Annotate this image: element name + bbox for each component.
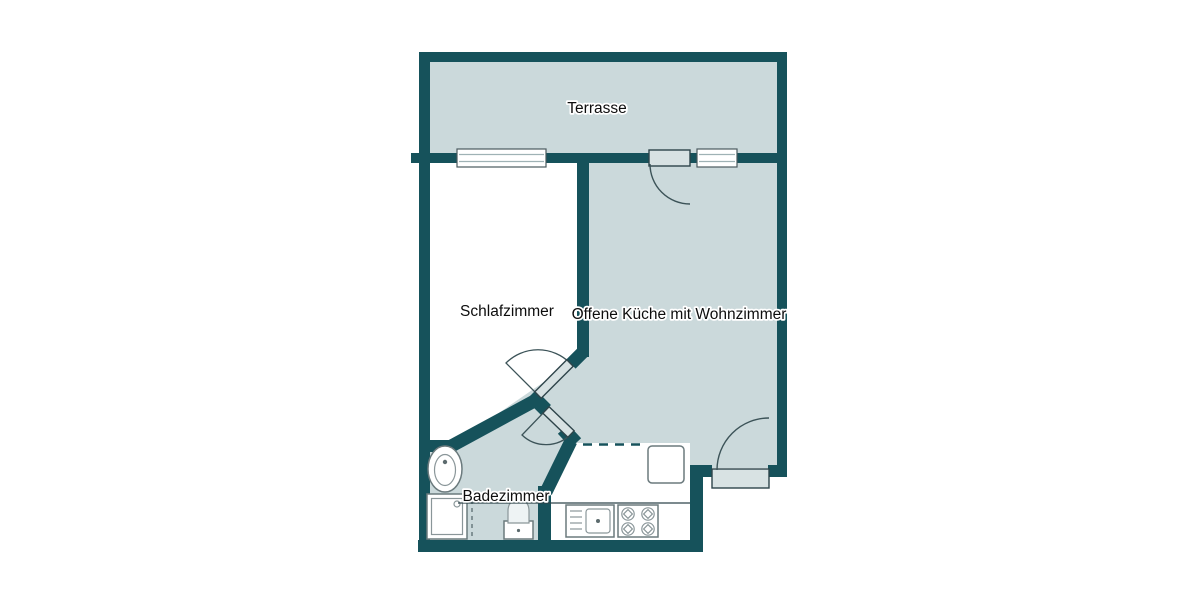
kitchen-right-wall [690,465,703,552]
door-corner-stub [571,351,584,364]
toilet-icon [504,500,533,539]
stove-icon [618,505,658,537]
bedroom-living-wall [577,153,589,357]
right-wall [777,52,787,477]
room-fills [430,62,777,540]
bottom-wall [418,540,703,552]
floor-plan-page: Terrasse Schlafzimmer Offene Küche mit W… [0,0,1200,600]
kitchen-counter-block [648,446,684,483]
floor-plan-canvas: Terrasse Schlafzimmer Offene Küche mit W… [0,0,1200,600]
left-wall [419,153,430,552]
terrace-left-wall [419,52,430,163]
bathroom-label: Badezimmer [463,488,550,505]
bedroom-label: Schlafzimmer [460,303,554,320]
bedroom-terrace-window [457,149,546,167]
washbasin-icon [428,446,462,492]
terrace-top-wall [419,52,787,62]
living-kitchen-label: Offene Küche mit Wohnzimmer [572,306,787,323]
terrace-label: Terrasse [567,100,626,117]
kitchen-sink-icon [566,505,614,537]
living-room-terrace-window [697,149,737,167]
shower-icon [427,494,467,539]
living-bottom-wall-right [768,465,787,477]
